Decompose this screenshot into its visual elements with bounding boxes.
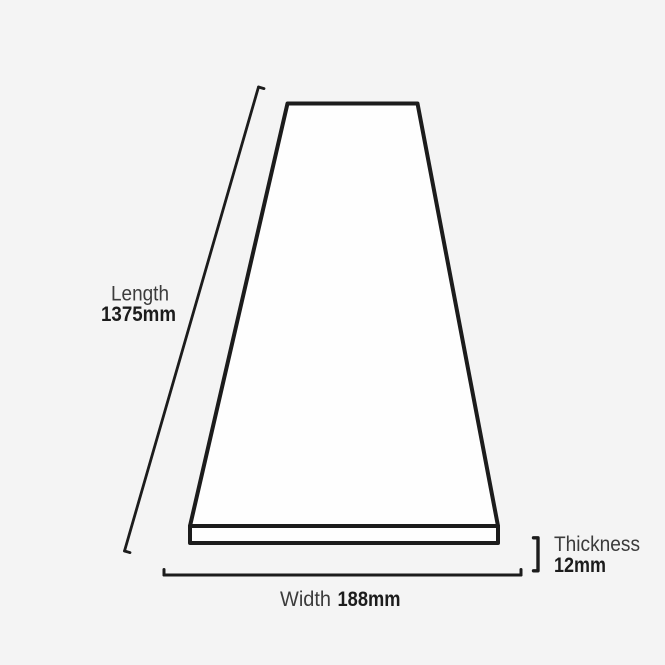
svg-text:12mm: 12mm bbox=[554, 554, 606, 577]
svg-text:1375mm: 1375mm bbox=[101, 303, 176, 326]
svg-text:188mm: 188mm bbox=[338, 588, 401, 611]
svg-text:Thickness: Thickness bbox=[554, 533, 640, 556]
svg-text:Width: Width bbox=[280, 588, 331, 611]
